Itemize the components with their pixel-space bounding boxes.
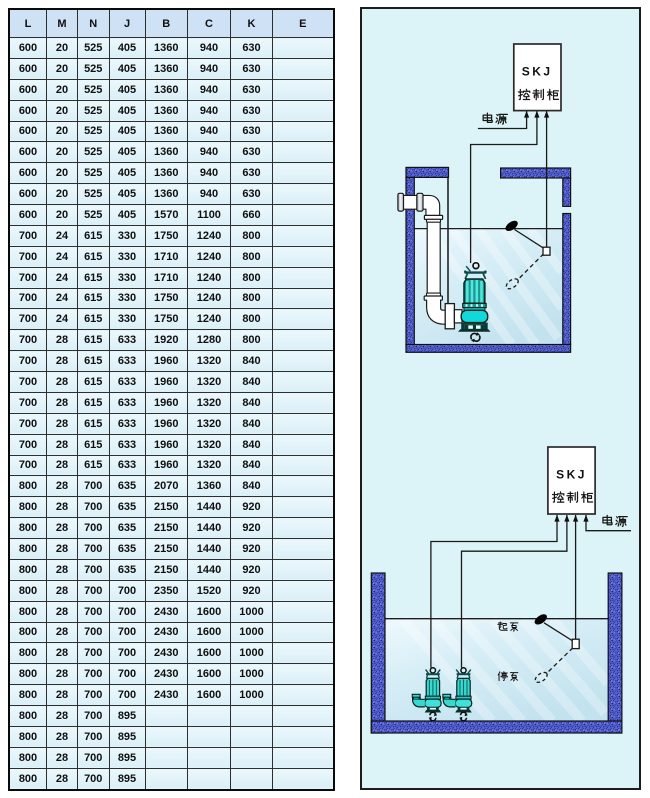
svg-text:SKJ: SKJ (522, 65, 553, 79)
svg-text:SKJ: SKJ (556, 468, 587, 482)
